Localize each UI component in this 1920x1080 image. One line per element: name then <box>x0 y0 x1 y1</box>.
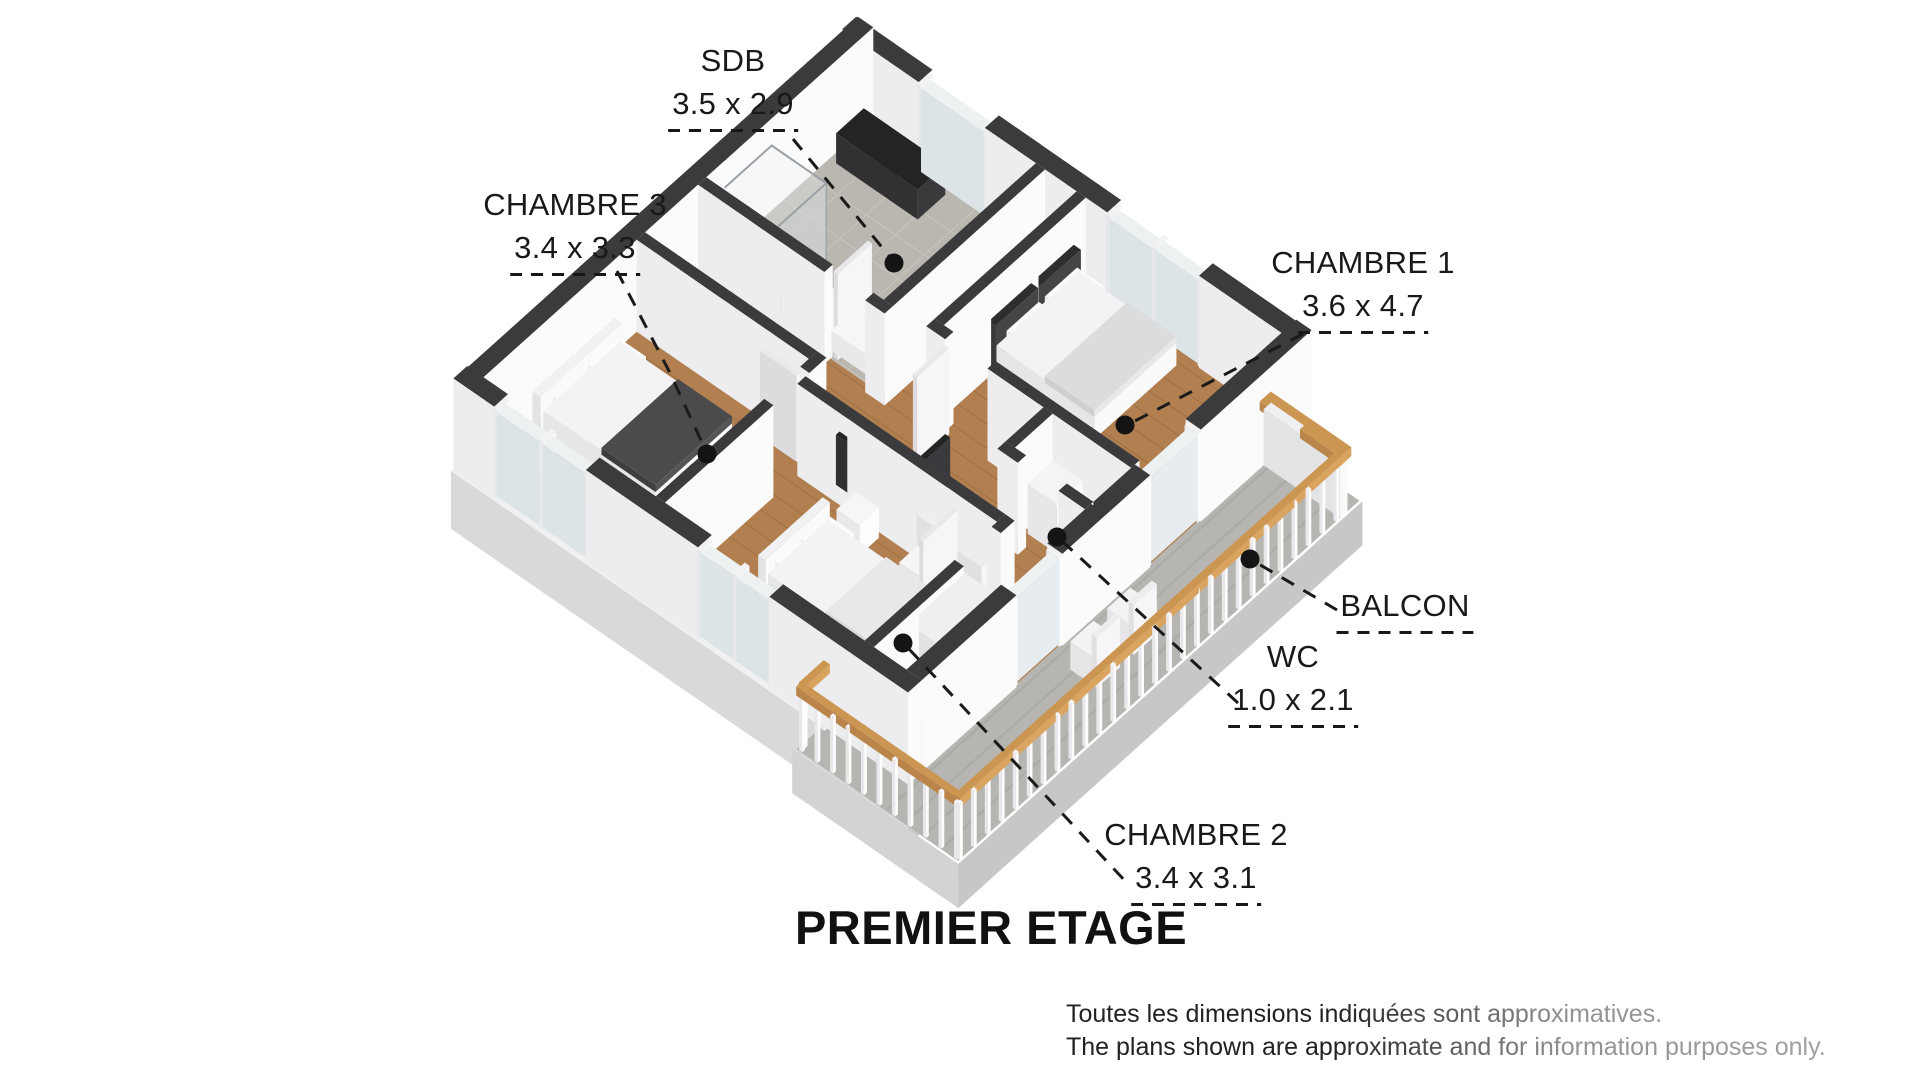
room-dims-chambre2: 3.4 x 3.1 <box>1131 856 1261 906</box>
room-dims-chambre3: 3.4 x 3.3 <box>510 226 640 276</box>
room-label-chambre2: CHAMBRE 2 3.4 x 3.1 <box>1104 814 1288 906</box>
room-dims-wc: 1.0 x 2.1 <box>1228 678 1358 728</box>
marker-dot-chambre3 <box>698 445 717 464</box>
room-label-chambre1: CHAMBRE 1 3.6 x 4.7 <box>1271 242 1455 334</box>
floor-title: PREMIER ETAGE <box>795 902 1187 954</box>
room-name-chambre3: CHAMBRE 3 <box>483 184 667 226</box>
disclaimer-line-en: The plans shown are approximate and for … <box>1066 1031 1826 1064</box>
room-name-balcon: BALCON <box>1336 584 1473 634</box>
room-label-sdb: SDB 3.5 x 2.9 <box>668 40 798 132</box>
isometric-floorplan-scene <box>451 17 1362 908</box>
disclaimer-line-fr: Toutes les dimensions indiquées sont app… <box>1066 998 1826 1031</box>
marker-dot-wc <box>1048 528 1067 547</box>
room-label-balcon: BALCON <box>1336 584 1473 634</box>
marker-dot-sdb <box>885 254 904 273</box>
marker-dot-chambre2 <box>894 634 913 653</box>
room-name-chambre2: CHAMBRE 2 <box>1104 814 1288 856</box>
disclaimer: Toutes les dimensions indiquées sont app… <box>1066 998 1826 1063</box>
room-name-sdb: SDB <box>668 40 798 82</box>
room-dims-sdb: 3.5 x 2.9 <box>668 82 798 132</box>
room-dims-chambre1: 3.6 x 4.7 <box>1298 284 1428 334</box>
room-label-wc: WC 1.0 x 2.1 <box>1228 636 1358 728</box>
marker-dot-chambre1 <box>1116 416 1135 435</box>
room-label-chambre3: CHAMBRE 3 3.4 x 3.3 <box>483 184 667 276</box>
marker-dot-balcon <box>1241 550 1260 569</box>
room-name-wc: WC <box>1228 636 1358 678</box>
floorplan-page: SDB 3.5 x 2.9 CHAMBRE 3 3.4 x 3.3 CHAMBR… <box>0 0 1920 1080</box>
room-name-chambre1: CHAMBRE 1 <box>1271 242 1455 284</box>
